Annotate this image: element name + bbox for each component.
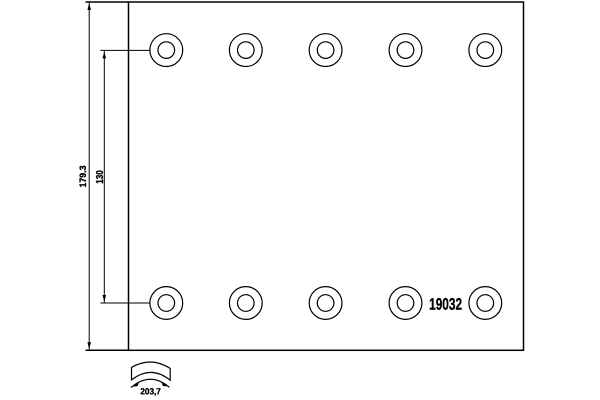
svg-text:19032: 19032 [429,295,462,314]
svg-text:179.3: 179.3 [78,165,88,187]
svg-text:203,7: 203,7 [140,386,161,396]
svg-text:130: 130 [95,170,106,184]
